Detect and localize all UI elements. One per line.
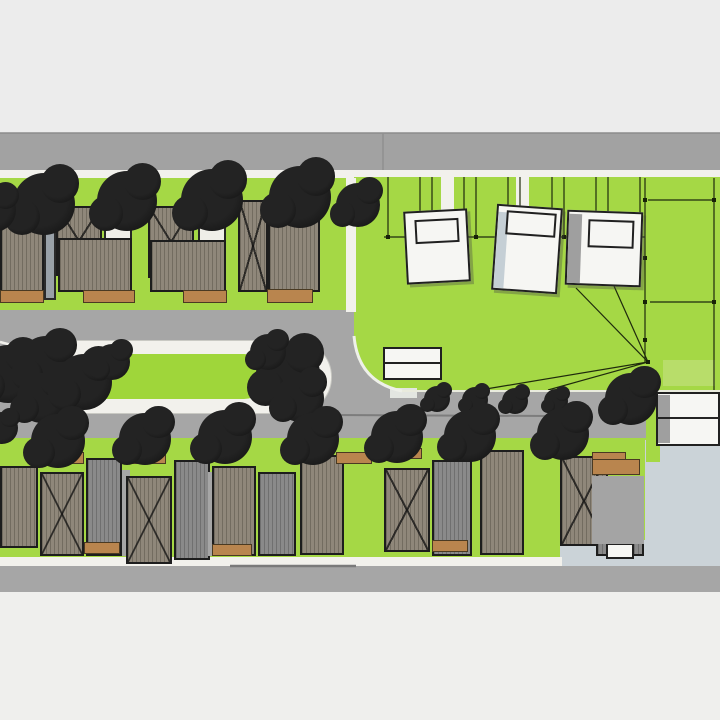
street-tree	[336, 183, 380, 227]
white-pad	[606, 543, 634, 559]
building-2-roof-step	[505, 210, 557, 237]
model-viewport[interactable]	[0, 0, 720, 720]
yard-tree	[537, 408, 589, 460]
building-3-shade	[567, 214, 582, 283]
young-street-tree	[424, 386, 450, 412]
yard-tree	[31, 414, 85, 468]
yard-tree	[198, 410, 252, 464]
building-3-roof-step	[588, 219, 635, 249]
garage-roof	[258, 472, 296, 556]
driveway-pad	[84, 542, 120, 554]
street-tree	[97, 171, 157, 231]
right-lot-pad	[592, 459, 640, 475]
driveway-pad	[0, 290, 44, 303]
house-roof	[212, 466, 256, 556]
house-roof	[300, 455, 344, 555]
gabled-house	[40, 472, 84, 556]
house-roof	[58, 238, 132, 292]
gabled-house	[126, 476, 172, 564]
street-tree	[269, 166, 331, 228]
street-tree	[181, 169, 243, 231]
house-roof	[150, 240, 226, 292]
yard-tree	[119, 413, 171, 465]
driveway-pad	[432, 540, 468, 552]
street-tree	[13, 173, 75, 235]
garage-roof	[174, 460, 210, 560]
median-tree	[94, 344, 130, 380]
median-tree	[250, 334, 286, 370]
house-roof	[0, 466, 38, 548]
house-roof	[480, 450, 524, 555]
driveway-pad	[183, 290, 227, 303]
yard-tree	[287, 413, 339, 465]
building-1-roof-step	[414, 218, 459, 244]
yard-tree	[371, 411, 423, 463]
gabled-house	[384, 468, 430, 552]
driveway-pad	[212, 544, 252, 556]
young-street-tree	[502, 388, 528, 414]
street-tree	[605, 373, 657, 425]
yard-tree	[444, 410, 496, 462]
garden-structure-bottom	[383, 362, 442, 380]
driveway-pad	[267, 289, 313, 303]
building-right-shade	[658, 395, 670, 443]
right-lot-paving	[592, 476, 644, 544]
driveway-pad	[83, 290, 135, 303]
building-right-divider	[657, 417, 719, 419]
